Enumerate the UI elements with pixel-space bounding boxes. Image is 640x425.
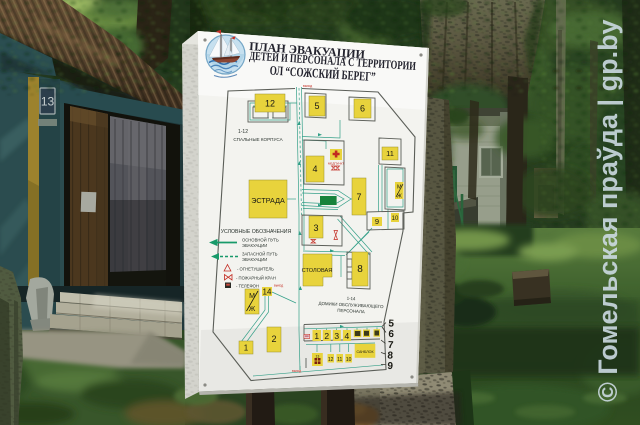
svg-text:13: 13 <box>315 355 319 359</box>
svg-text:Ж: Ж <box>249 306 256 313</box>
svg-text:ЭСТРАДА: ЭСТРАДА <box>251 196 285 205</box>
svg-text:12: 12 <box>328 357 334 363</box>
svg-text:САНБЛОК: САНБЛОК <box>356 350 374 354</box>
svg-text:7: 7 <box>356 192 361 202</box>
svg-text:- ПОЖАРНЫЙ КРАН: - ПОЖАРНЫЙ КРАН <box>236 276 276 281</box>
svg-text:выход: выход <box>274 284 283 288</box>
svg-text:выход: выход <box>303 84 312 88</box>
svg-text:8: 8 <box>357 264 363 275</box>
svg-text:ЭВАКУАЦИИ: ЭВАКУАЦИИ <box>242 243 267 248</box>
svg-text:1: 1 <box>314 331 319 341</box>
svg-text:11: 11 <box>337 357 342 363</box>
svg-text:4: 4 <box>345 331 350 341</box>
svg-text:СТОЛОВАЯ: СТОЛОВАЯ <box>302 268 333 274</box>
svg-text:4: 4 <box>312 164 317 174</box>
svg-text:10: 10 <box>346 357 352 363</box>
svg-text:6: 6 <box>360 104 365 114</box>
svg-text:2: 2 <box>271 334 276 344</box>
svg-text:- ТЕЛЕФОН: - ТЕЛЕФОН <box>236 284 259 289</box>
svg-text:1-14: 1-14 <box>347 296 357 301</box>
svg-text:10: 10 <box>392 216 399 222</box>
svg-text:ОСНОВНОЙ ПУТЬ: ОСНОВНОЙ ПУТЬ <box>242 238 279 243</box>
svg-text:11: 11 <box>386 149 394 158</box>
svg-text:1-12: 1-12 <box>238 129 248 135</box>
svg-text:выход: выход <box>292 369 301 373</box>
svg-text:ЗАПАСНОЙ ПУТЬ: ЗАПАСНОЙ ПУТЬ <box>242 252 278 257</box>
svg-text:5: 5 <box>314 101 319 111</box>
svg-text:- ОГНЕТУШИТЕЛЬ: - ОГНЕТУШИТЕЛЬ <box>237 267 274 272</box>
svg-text:УСЛОВНЫЕ ОБОЗНАЧЕНИЯ: УСЛОВНЫЕ ОБОЗНАЧЕНИЯ <box>221 229 292 235</box>
svg-text:© Гомельская праўда | gp.by: © Гомельская праўда | gp.by <box>593 19 623 402</box>
svg-text:9: 9 <box>375 217 379 226</box>
svg-text:М: М <box>249 293 255 300</box>
svg-text:2: 2 <box>324 331 329 341</box>
svg-text:МЕДПУНКТ: МЕДПУНКТ <box>328 162 345 166</box>
svg-text:3: 3 <box>313 223 318 233</box>
svg-text:12: 12 <box>265 99 275 109</box>
svg-text:СПАЛЬНЫЕ КОРПУСА: СПАЛЬНЫЕ КОРПУСА <box>233 137 283 142</box>
svg-text:14: 14 <box>263 288 272 297</box>
svg-text:6: 6 <box>388 329 395 340</box>
svg-text:ЭВАКУАЦИИ: ЭВАКУАЦИИ <box>242 257 267 262</box>
svg-text:1: 1 <box>244 344 249 353</box>
svg-text:9: 9 <box>387 361 394 372</box>
svg-text:3: 3 <box>334 331 339 341</box>
